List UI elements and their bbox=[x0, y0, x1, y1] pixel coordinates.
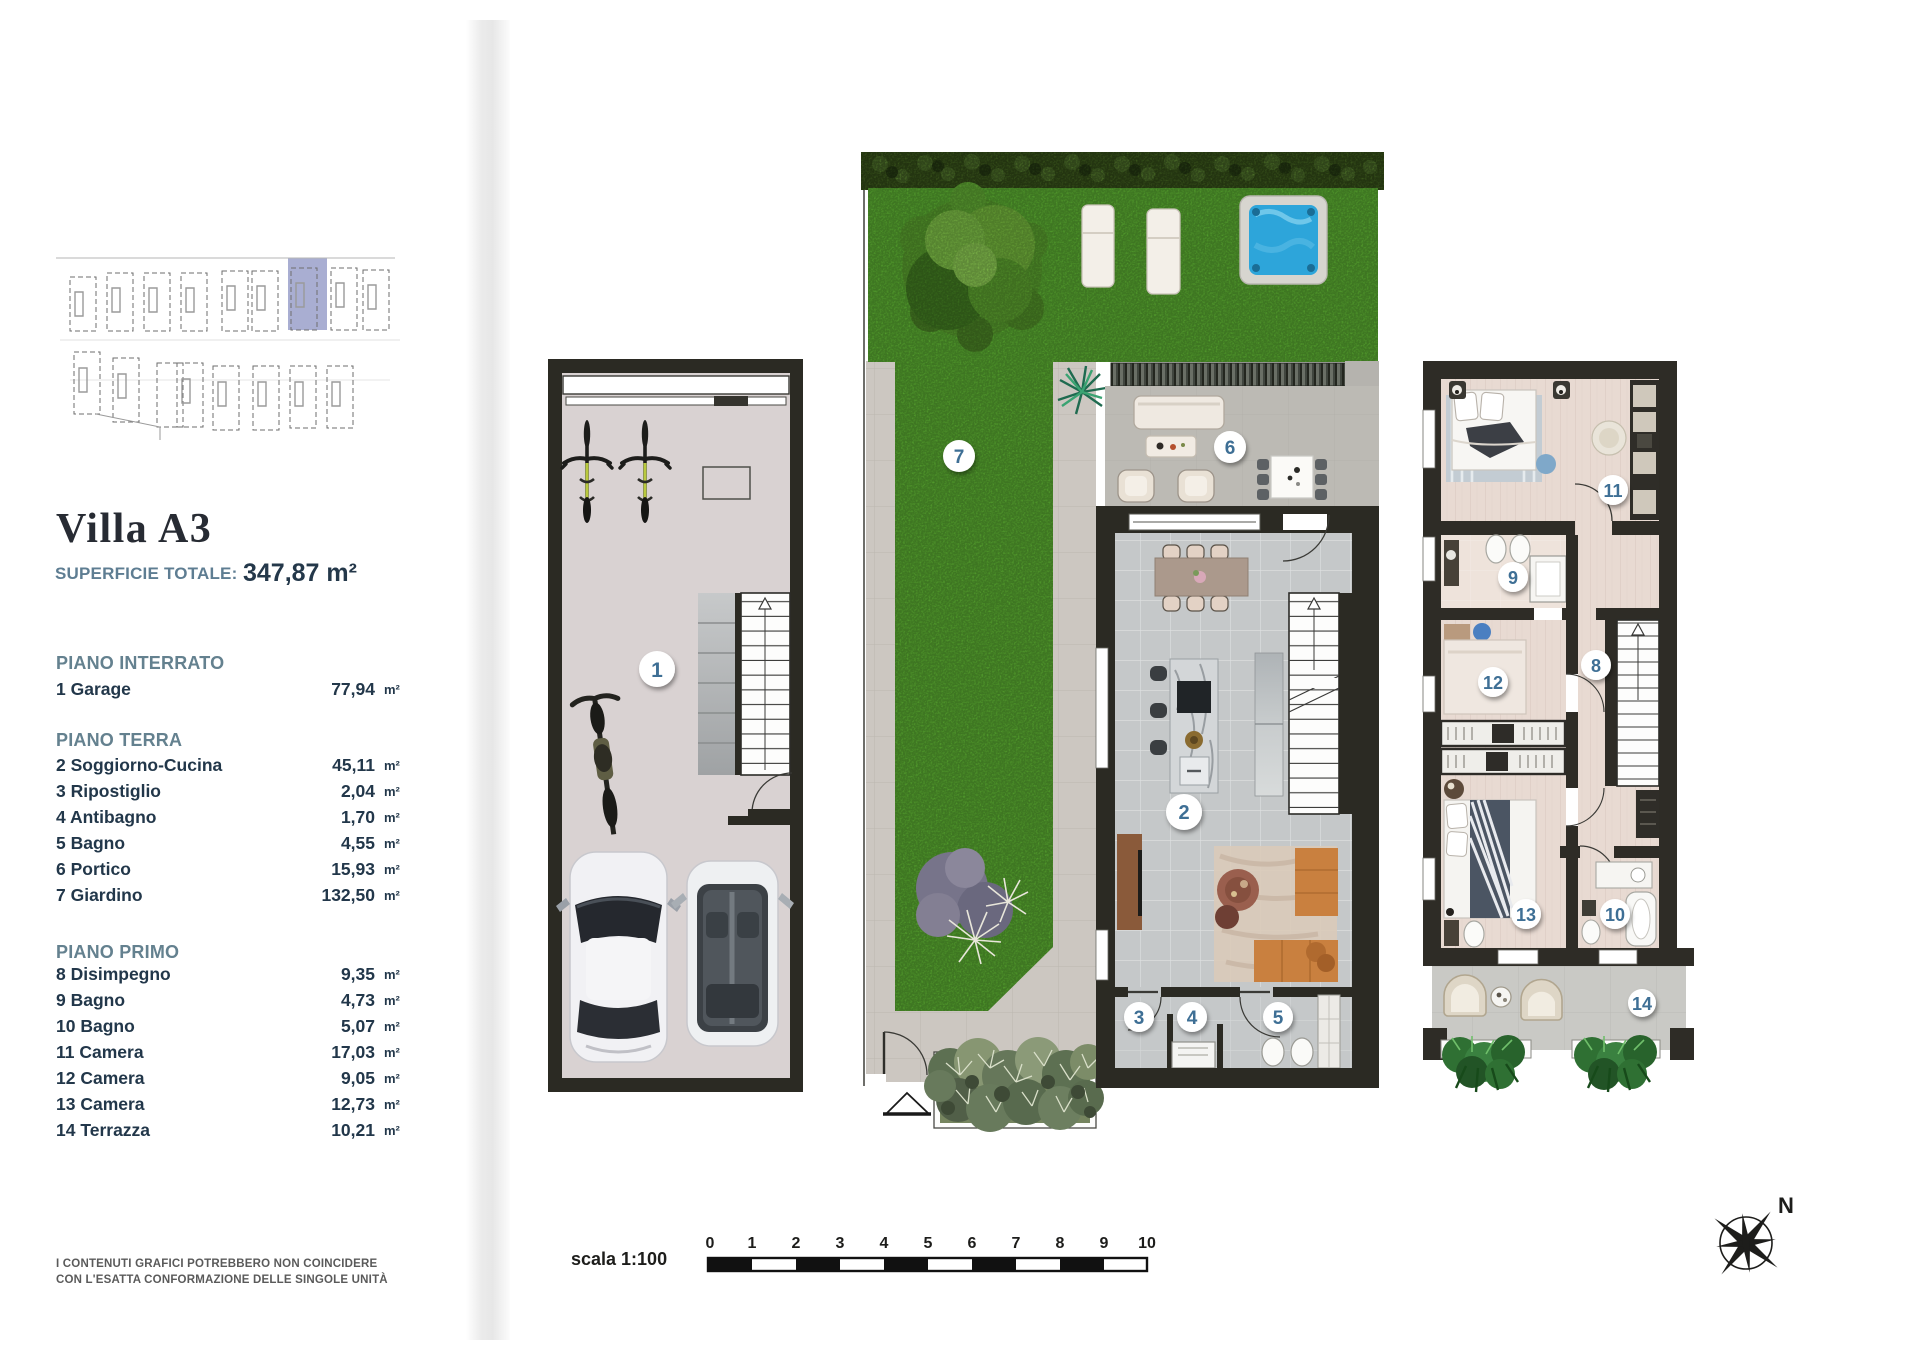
svg-text:m²: m² bbox=[384, 1045, 401, 1060]
svg-text:scala 1:100: scala 1:100 bbox=[571, 1249, 667, 1269]
svg-text:3 Ripostiglio: 3 Ripostiglio bbox=[56, 781, 161, 801]
svg-text:PIANO INTERRATO: PIANO INTERRATO bbox=[56, 653, 224, 673]
svg-text:5 Bagno: 5 Bagno bbox=[56, 833, 125, 853]
svg-text:PIANO TERRA: PIANO TERRA bbox=[56, 730, 182, 750]
svg-text:2: 2 bbox=[792, 1235, 801, 1252]
svg-text:7: 7 bbox=[1012, 1235, 1021, 1252]
svg-text:CON L'ESATTA CONFORMAZIONE DEL: CON L'ESATTA CONFORMAZIONE DELLE SINGOLE… bbox=[56, 1273, 388, 1286]
svg-text:SUPERFICIE TOTALE:: SUPERFICIE TOTALE: bbox=[55, 564, 237, 583]
svg-text:m²: m² bbox=[384, 967, 401, 982]
svg-text:m²: m² bbox=[384, 682, 401, 697]
svg-text:12,73: 12,73 bbox=[331, 1094, 375, 1114]
svg-text:8 Disimpegno: 8 Disimpegno bbox=[56, 964, 171, 984]
svg-text:10,21: 10,21 bbox=[331, 1120, 375, 1140]
svg-text:9 Bagno: 9 Bagno bbox=[56, 990, 125, 1010]
svg-text:PIANO PRIMO: PIANO PRIMO bbox=[56, 942, 179, 962]
svg-text:m²: m² bbox=[384, 862, 401, 877]
svg-text:8: 8 bbox=[1056, 1235, 1065, 1252]
svg-text:14 Terrazza: 14 Terrazza bbox=[56, 1120, 150, 1140]
svg-text:1,70: 1,70 bbox=[341, 807, 375, 827]
svg-text:I CONTENUTI GRAFICI POTREBBERO: I CONTENUTI GRAFICI POTREBBERO NON COINC… bbox=[56, 1258, 378, 1270]
svg-text:2 Soggiorno-Cucina: 2 Soggiorno-Cucina bbox=[56, 755, 223, 775]
svg-text:11 Camera: 11 Camera bbox=[56, 1042, 144, 1062]
svg-text:m²: m² bbox=[384, 1097, 401, 1112]
svg-text:347,87 m²: 347,87 m² bbox=[243, 559, 357, 587]
svg-text:4 Antibagno: 4 Antibagno bbox=[56, 807, 156, 827]
svg-text:m²: m² bbox=[384, 888, 401, 903]
svg-text:12 Camera: 12 Camera bbox=[56, 1068, 145, 1088]
svg-text:45,11: 45,11 bbox=[332, 755, 375, 775]
svg-text:9: 9 bbox=[1100, 1235, 1109, 1252]
svg-text:1 Garage: 1 Garage bbox=[56, 679, 131, 699]
svg-text:13: 13 bbox=[1516, 905, 1536, 925]
svg-text:4: 4 bbox=[1187, 1008, 1198, 1029]
svg-text:8: 8 bbox=[1591, 656, 1601, 676]
svg-text:12: 12 bbox=[1483, 673, 1503, 693]
svg-text:N: N bbox=[1778, 1193, 1794, 1218]
svg-text:m²: m² bbox=[384, 1071, 401, 1086]
svg-text:132,50: 132,50 bbox=[321, 885, 375, 905]
svg-text:2: 2 bbox=[1178, 802, 1189, 824]
svg-text:6: 6 bbox=[968, 1235, 977, 1252]
svg-text:6: 6 bbox=[1225, 438, 1236, 459]
svg-text:77,94: 77,94 bbox=[331, 679, 375, 699]
svg-text:4: 4 bbox=[880, 1235, 889, 1252]
svg-text:4,73: 4,73 bbox=[341, 990, 375, 1010]
svg-text:5,07: 5,07 bbox=[341, 1016, 375, 1036]
svg-text:9,35: 9,35 bbox=[341, 964, 375, 984]
svg-text:6 Portico: 6 Portico bbox=[56, 859, 131, 879]
svg-text:3: 3 bbox=[1134, 1008, 1145, 1029]
svg-text:15,93: 15,93 bbox=[331, 859, 375, 879]
svg-text:7: 7 bbox=[954, 447, 965, 468]
svg-text:m²: m² bbox=[384, 1019, 401, 1034]
svg-text:1: 1 bbox=[748, 1235, 757, 1252]
svg-text:4,55: 4,55 bbox=[341, 833, 375, 853]
svg-text:m²: m² bbox=[384, 784, 401, 799]
svg-text:5: 5 bbox=[1273, 1008, 1284, 1029]
svg-text:0: 0 bbox=[706, 1235, 715, 1252]
svg-text:m²: m² bbox=[384, 993, 401, 1008]
svg-text:3: 3 bbox=[836, 1235, 845, 1252]
svg-text:17,03: 17,03 bbox=[331, 1042, 375, 1062]
svg-text:11: 11 bbox=[1603, 481, 1622, 501]
svg-text:10: 10 bbox=[1605, 905, 1625, 925]
svg-text:Villa A3: Villa A3 bbox=[56, 506, 212, 552]
svg-text:14: 14 bbox=[1632, 994, 1652, 1014]
svg-text:m²: m² bbox=[384, 1123, 401, 1138]
svg-text:m²: m² bbox=[384, 836, 401, 851]
svg-text:7 Giardino: 7 Giardino bbox=[56, 885, 143, 905]
svg-text:m²: m² bbox=[384, 758, 401, 773]
svg-text:9,05: 9,05 bbox=[341, 1068, 375, 1088]
svg-text:10 Bagno: 10 Bagno bbox=[56, 1016, 135, 1036]
svg-text:2,04: 2,04 bbox=[341, 781, 375, 801]
svg-text:1: 1 bbox=[651, 659, 663, 682]
svg-text:10: 10 bbox=[1138, 1235, 1156, 1252]
svg-text:9: 9 bbox=[1508, 568, 1518, 588]
svg-text:5: 5 bbox=[924, 1235, 933, 1252]
svg-text:m²: m² bbox=[384, 810, 401, 825]
svg-text:13 Camera: 13 Camera bbox=[56, 1094, 145, 1114]
